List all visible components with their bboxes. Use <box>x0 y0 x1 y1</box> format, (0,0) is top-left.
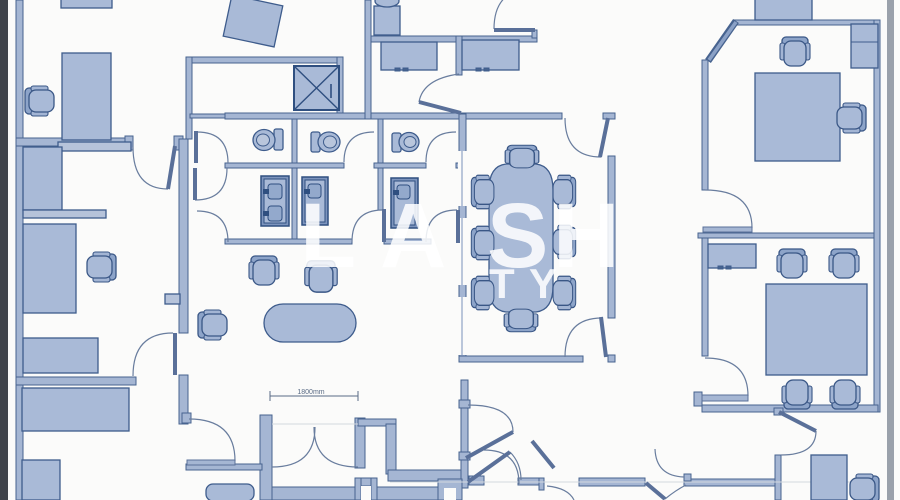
svg-text:L: L <box>300 185 356 287</box>
svg-text:1800mm: 1800mm <box>297 389 324 396</box>
svg-text:A: A <box>380 185 446 287</box>
svg-text:T: T <box>489 260 515 307</box>
svg-text:Y: Y <box>529 260 557 307</box>
svg-text:H: H <box>553 185 619 287</box>
